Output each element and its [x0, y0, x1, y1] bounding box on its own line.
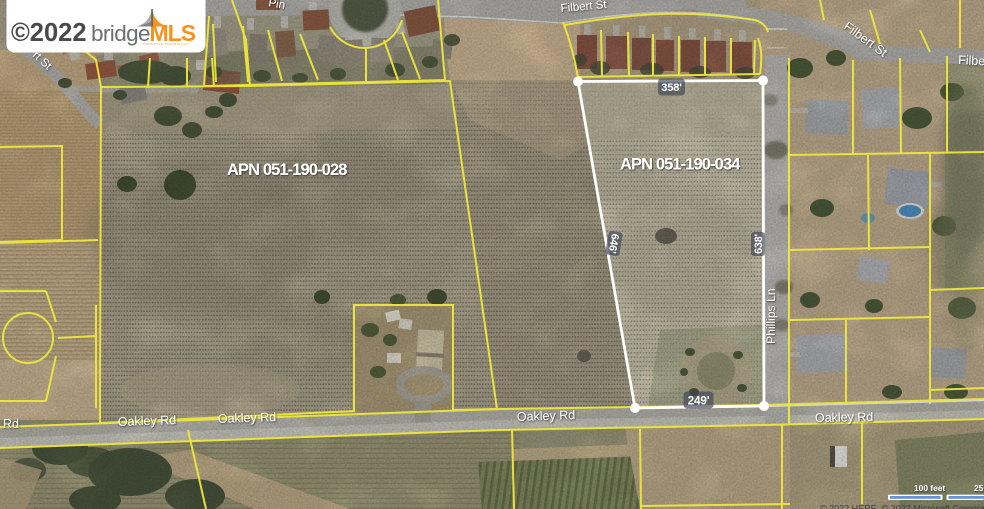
svg-text:358': 358' [661, 82, 682, 94]
svg-text:©2022: ©2022 [11, 19, 87, 47]
svg-text:APN 051-190-028: APN 051-190-028 [227, 161, 347, 179]
svg-text:© 2022 HERE, © 2022 Microsoft: © 2022 HERE, © 2022 Microsoft Corporatio… [820, 504, 984, 509]
svg-text:249': 249' [688, 393, 710, 407]
svg-text:25: 25 [974, 483, 984, 493]
svg-text:638': 638' [753, 233, 765, 253]
svg-text:APN 051-190-034: APN 051-190-034 [620, 156, 741, 174]
svg-text:Phillips Ln: Phillips Ln [764, 288, 778, 344]
svg-text:Oakley Rd: Oakley Rd [218, 410, 277, 426]
svg-text:Oakley Rd: Oakley Rd [118, 413, 177, 429]
svg-text:Rd: Rd [3, 417, 19, 431]
svg-text:INNOVATIVE TECHNOLOGY: INNOVATIVE TECHNOLOGY [142, 42, 189, 46]
svg-text:Oakley Rd: Oakley Rd [815, 410, 874, 425]
svg-text:100 feet: 100 feet [914, 483, 945, 493]
svg-text:Filbe: Filbe [958, 53, 984, 68]
svg-text:Oakley Rd: Oakley Rd [517, 408, 576, 424]
